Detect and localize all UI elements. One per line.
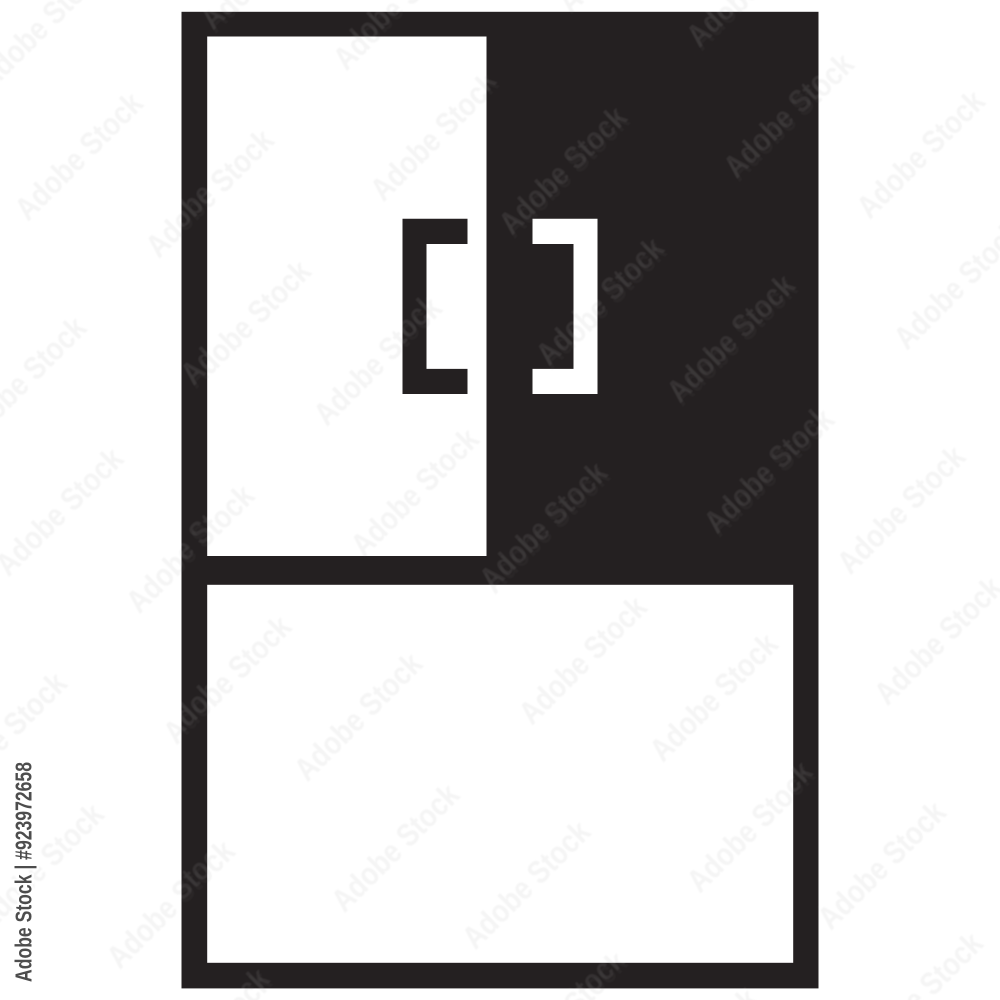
svg-text:Adobe Stock | #923972658: Adobe Stock | #923972658 [11, 762, 37, 982]
